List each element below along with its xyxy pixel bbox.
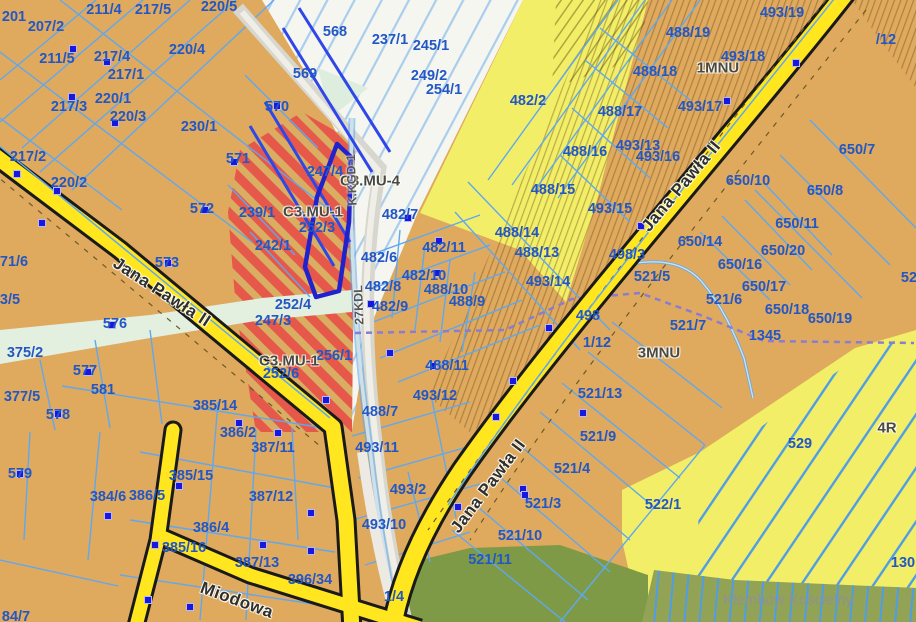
survey-point-marker (387, 350, 394, 357)
survey-point-marker (85, 369, 92, 376)
survey-point-marker (638, 223, 645, 230)
survey-point-marker (455, 504, 462, 511)
survey-point-marker (39, 220, 46, 227)
cadastral-map[interactable]: 201207/2211/4217/5220/5211/5217/4217/122… (0, 0, 916, 622)
survey-point-marker (165, 260, 172, 267)
survey-point-marker (522, 492, 529, 499)
survey-point-marker (368, 301, 375, 308)
survey-point-marker (104, 59, 111, 66)
survey-point-marker (54, 188, 61, 195)
survey-point-marker (17, 471, 24, 478)
survey-point-marker (546, 325, 553, 332)
survey-point-marker (430, 363, 437, 370)
survey-point-marker (274, 103, 281, 110)
map-graphics (0, 0, 916, 622)
survey-point-marker (580, 410, 587, 417)
survey-point-marker (145, 597, 152, 604)
survey-point-marker (55, 411, 62, 418)
survey-point-marker (793, 60, 800, 67)
survey-point-marker (436, 238, 443, 245)
survey-point-marker (69, 94, 76, 101)
survey-point-marker (510, 378, 517, 385)
survey-point-marker (202, 207, 209, 214)
survey-point-marker (14, 171, 21, 178)
survey-point-marker (112, 120, 119, 127)
survey-point-marker (187, 604, 194, 611)
survey-point-marker (308, 548, 315, 555)
survey-point-marker (105, 513, 112, 520)
survey-point-marker (152, 542, 159, 549)
survey-point-marker (493, 414, 500, 421)
survey-point-marker (724, 98, 731, 105)
survey-point-marker (275, 430, 282, 437)
survey-point-marker (323, 397, 330, 404)
survey-point-marker (231, 159, 238, 166)
survey-point-marker (434, 270, 441, 277)
survey-point-marker (109, 322, 116, 329)
survey-point-marker (405, 215, 412, 222)
survey-point-marker (70, 46, 77, 53)
survey-point-marker (236, 420, 243, 427)
survey-point-marker (260, 542, 267, 549)
survey-point-marker (176, 483, 183, 490)
survey-point-marker (308, 510, 315, 517)
